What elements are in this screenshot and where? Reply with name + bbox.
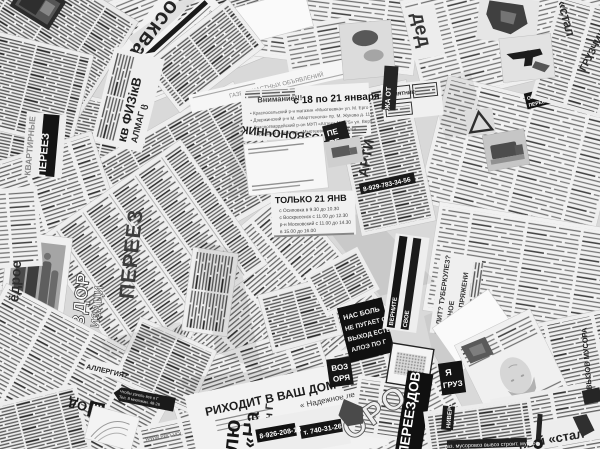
svg-text:ёдрое: ёдрое [5, 260, 24, 303]
svg-text:Я: Я [445, 367, 453, 378]
